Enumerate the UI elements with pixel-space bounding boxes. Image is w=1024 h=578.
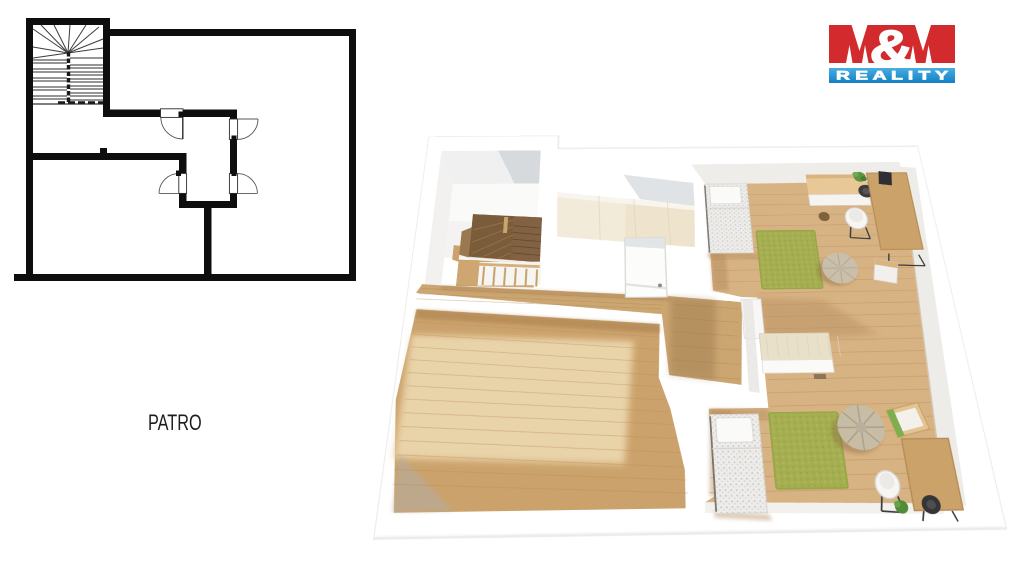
svg-text:R E A L I T Y: R E A L I T Y xyxy=(836,69,948,83)
